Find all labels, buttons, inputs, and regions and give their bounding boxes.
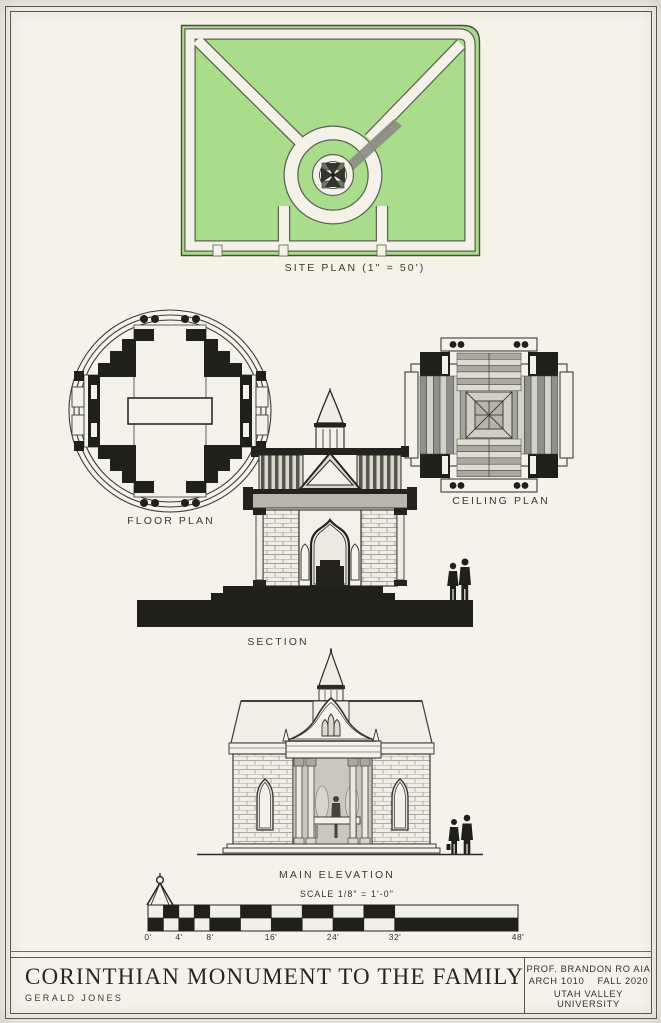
checkered-bar (148, 905, 518, 931)
scale-caption: SCALE 1/8" = 1'-0" (262, 889, 432, 899)
school-name: UTAH VALLEY UNIVERSITY (525, 989, 652, 1009)
scale-tick: 48' (512, 932, 525, 942)
pedestrian-silhouettes (447, 559, 471, 601)
main-elevation-drawing (195, 648, 485, 866)
section-entablature (243, 487, 417, 510)
site-plan-label: SITE PLAN (1" = 50') (255, 262, 455, 274)
sheet-title: CORINTHIAN MONUMENT TO THE FAMILY (25, 963, 524, 990)
section-label: SECTION (198, 636, 358, 648)
author-name: GERALD JONES (25, 993, 524, 1003)
drawing-board: SITE PLAN (1" = 50') (0, 0, 661, 1023)
monument-roof-plan (320, 162, 347, 189)
elevation-base (197, 844, 483, 855)
scale-tick: 8' (206, 932, 213, 942)
section-base-ground (137, 586, 473, 627)
elevation-portico (286, 741, 381, 844)
site-plan-drawing (180, 24, 481, 257)
course-term: FALL 2020 (598, 976, 649, 986)
title-block-divider-line (10, 951, 652, 952)
graphic-scale-bar: SCALE 1/8" = 1'-0" 0' 4' 8' 16' 24' 32' … (136, 868, 536, 956)
section-drawing (135, 388, 475, 640)
title-block: CORINTHIAN MONUMENT TO THE FAMILY GERALD… (10, 957, 652, 1014)
scale-tick: 24' (327, 932, 340, 942)
course-info-block: PROF. BRANDON RO AIA ARCH 1010 FALL 2020… (524, 958, 652, 1014)
scale-tick: 0' (144, 932, 151, 942)
scale-tick: 4' (175, 932, 182, 942)
section-walls (263, 510, 397, 586)
elevation-steeple (317, 648, 345, 701)
course-code: ARCH 1010 (529, 976, 585, 986)
scale-tick: 32' (389, 932, 402, 942)
section-roof (251, 446, 409, 491)
section-steeple (314, 388, 346, 450)
pedestrian-silhouettes (447, 815, 474, 854)
scale-tick: 16' (265, 932, 278, 942)
drafting-compass-icon (147, 873, 173, 905)
professor-name: PROF. BRANDON RO AIA (526, 964, 650, 974)
coffer-bands-top (457, 353, 521, 391)
